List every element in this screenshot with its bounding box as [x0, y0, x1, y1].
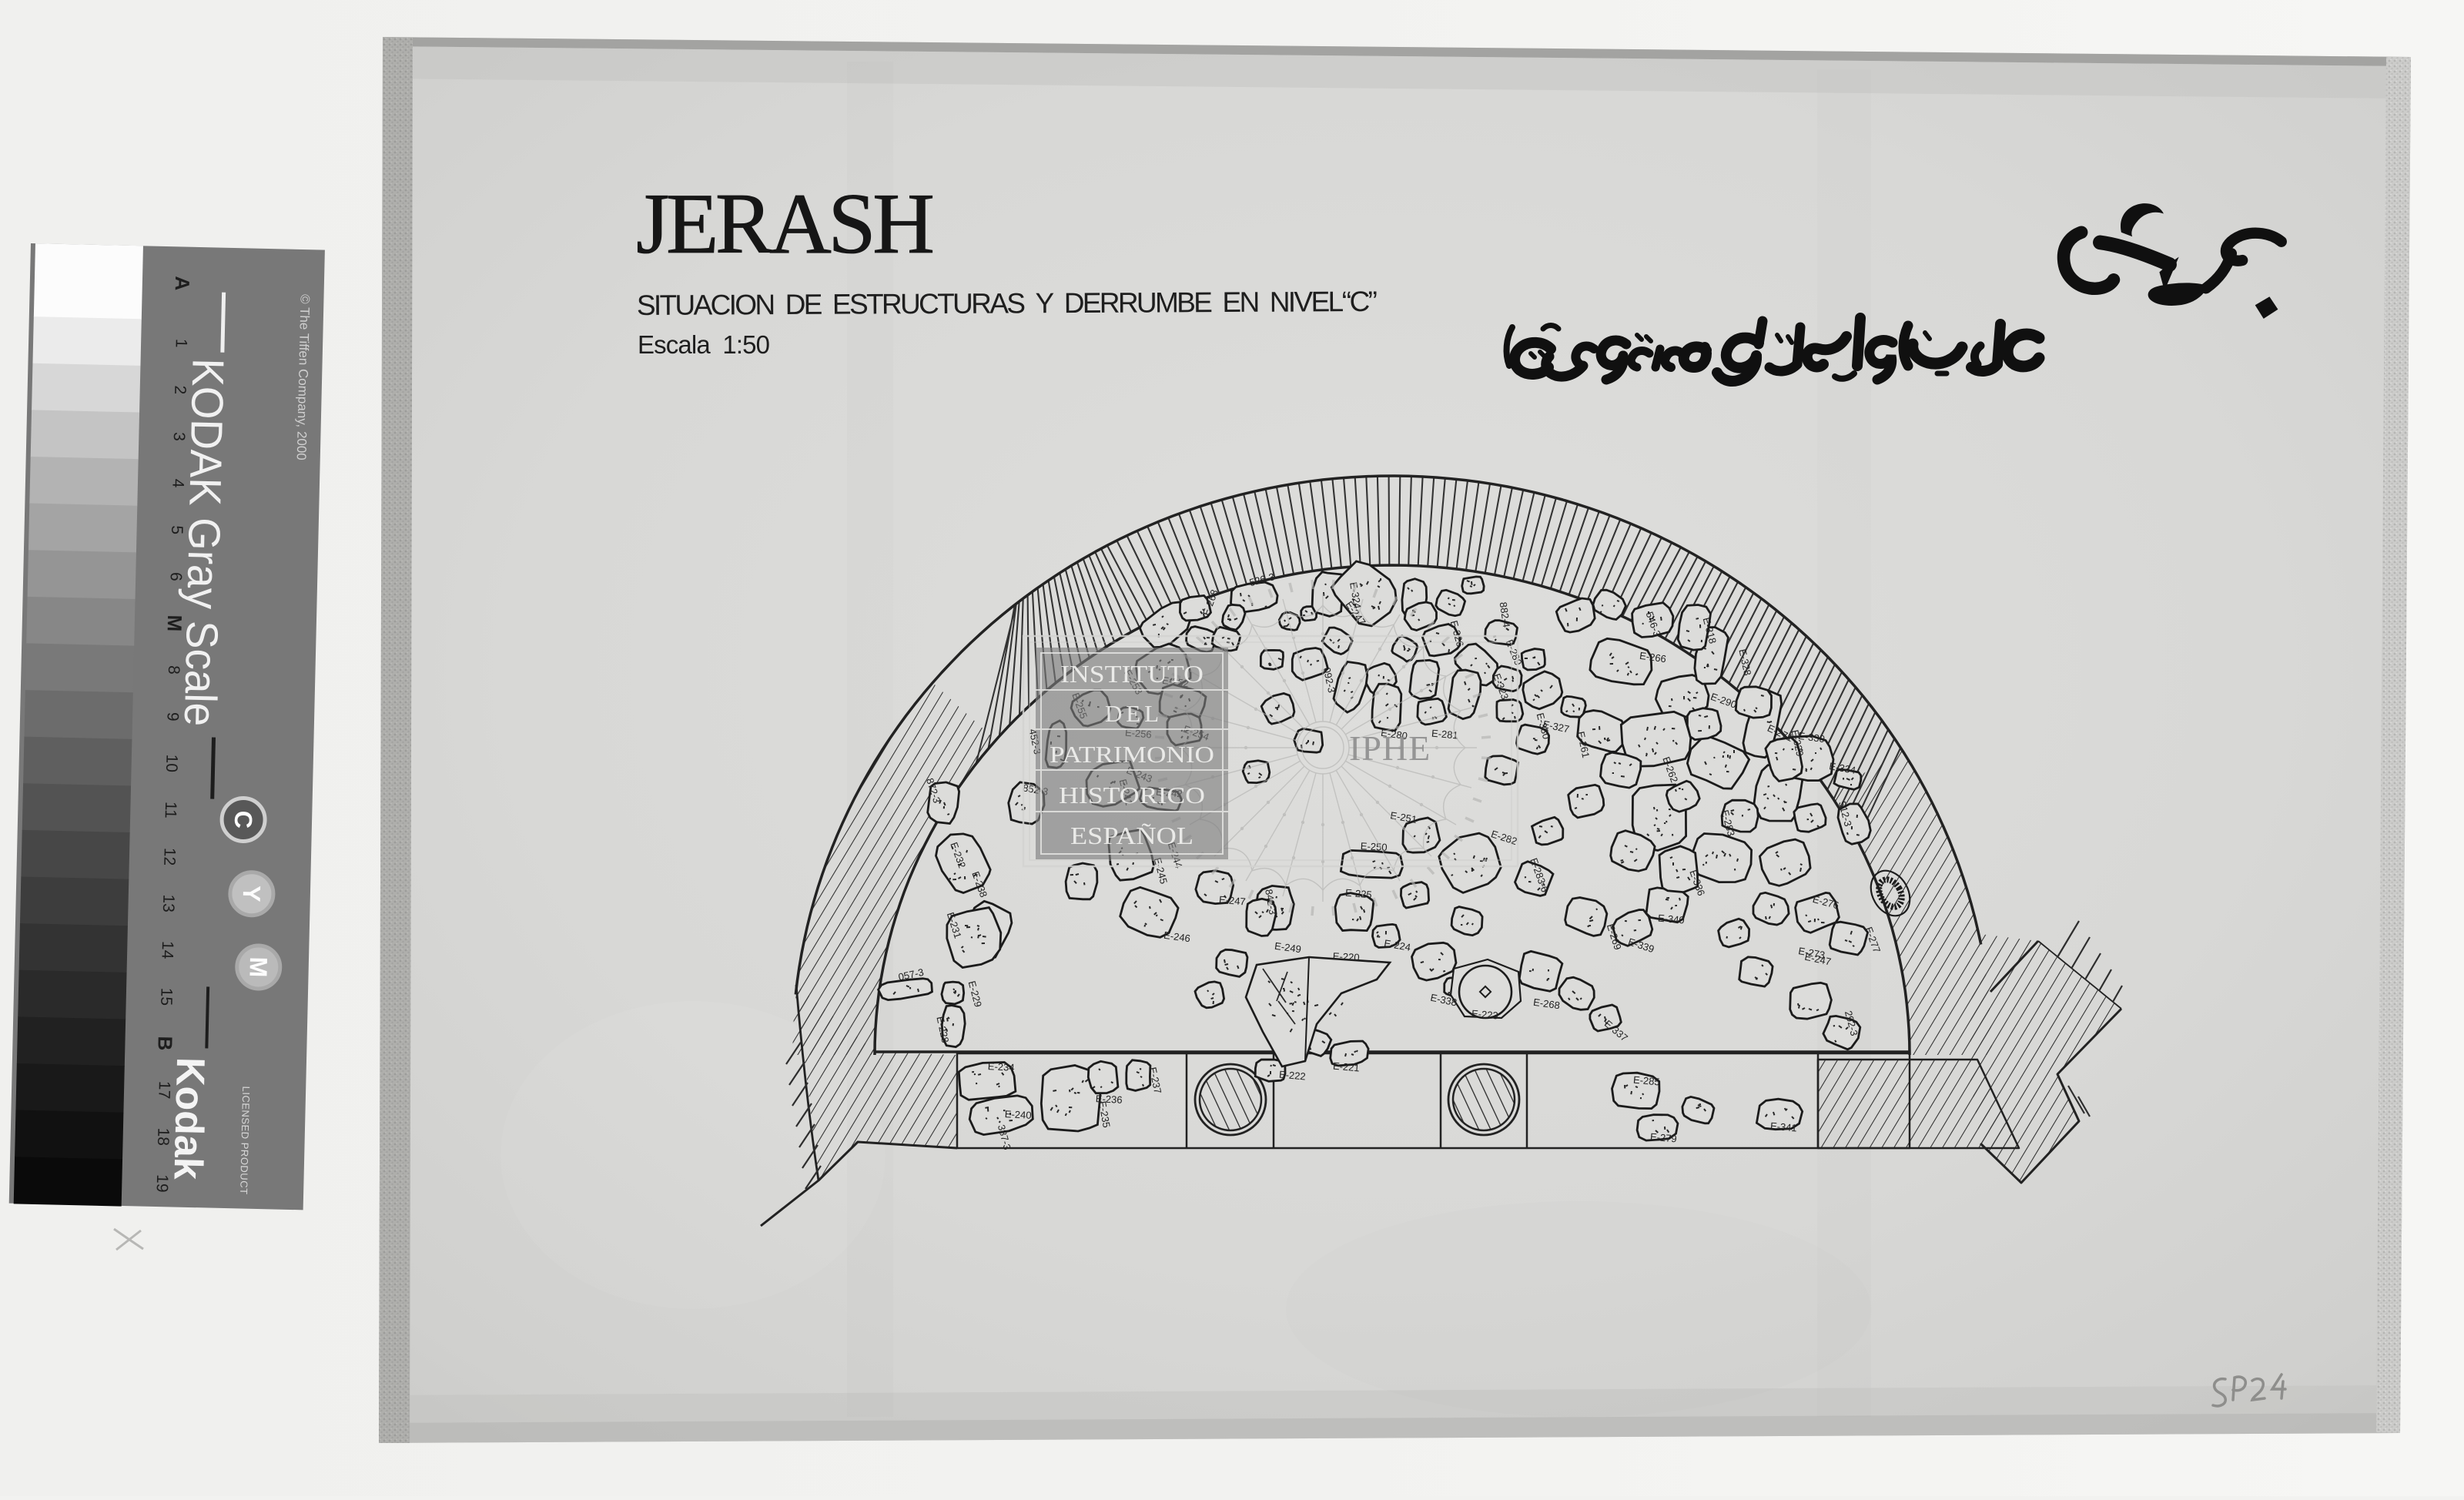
svg-text:E-341: E-341	[1769, 1120, 1797, 1134]
svg-text:C: C	[229, 810, 258, 829]
svg-text:Y: Y	[238, 886, 266, 902]
svg-text:HISTORICO: HISTORICO	[1059, 782, 1205, 809]
svg-text:E-250: E-250	[1361, 840, 1388, 853]
svg-text:11: 11	[162, 802, 179, 819]
svg-text:E-223: E-223	[1471, 1008, 1498, 1022]
svg-text:A: A	[171, 276, 194, 291]
svg-text:E-247: E-247	[1218, 894, 1246, 908]
svg-text:E-279: E-279	[1649, 1131, 1677, 1145]
svg-text:E-220: E-220	[1333, 950, 1360, 963]
svg-text:15: 15	[157, 988, 176, 1006]
svg-text:E-221: E-221	[1332, 1060, 1360, 1074]
svg-text:E-222: E-222	[1278, 1069, 1306, 1083]
svg-text:E-225: E-225	[1344, 887, 1372, 901]
svg-text:13: 13	[159, 894, 178, 912]
svg-text:INSTITUTO: INSTITUTO	[1060, 660, 1204, 688]
svg-text:LICENSED PRODUCT: LICENSED PRODUCT	[238, 1086, 252, 1194]
svg-text:E-285: E-285	[1632, 1074, 1660, 1088]
svg-text:B: B	[153, 1036, 176, 1050]
svg-text:SITUACION DE ESTRUCTURAS Y: SITUACION DE ESTRUCTURAS Y DERRUMBE EN N…	[637, 286, 1378, 321]
svg-text:10: 10	[162, 754, 181, 772]
svg-text:14: 14	[158, 941, 176, 959]
svg-text:JERASH: JERASH	[636, 176, 939, 272]
svg-text:KODAK Gray Scale: KODAK Gray Scale	[175, 358, 233, 727]
svg-text:M: M	[244, 956, 273, 977]
svg-text:ESPAÑOL: ESPAÑOL	[1070, 822, 1193, 849]
svg-text:E-340: E-340	[1657, 912, 1685, 926]
svg-text:E-236: E-236	[1096, 1093, 1123, 1106]
svg-text:IPHE: IPHE	[1349, 728, 1431, 768]
svg-text:E-234: E-234	[988, 1060, 1015, 1073]
svg-text:DEL: DEL	[1105, 700, 1159, 727]
svg-text:Escala 1:50: Escala 1:50	[638, 330, 770, 359]
svg-text:12: 12	[160, 848, 179, 866]
svg-text:PATRIMONIO: PATRIMONIO	[1050, 741, 1214, 768]
svg-text:E-240: E-240	[1005, 1108, 1032, 1121]
svg-text:1: 1	[172, 339, 189, 348]
svg-text:Kodak: Kodak	[165, 1056, 213, 1180]
